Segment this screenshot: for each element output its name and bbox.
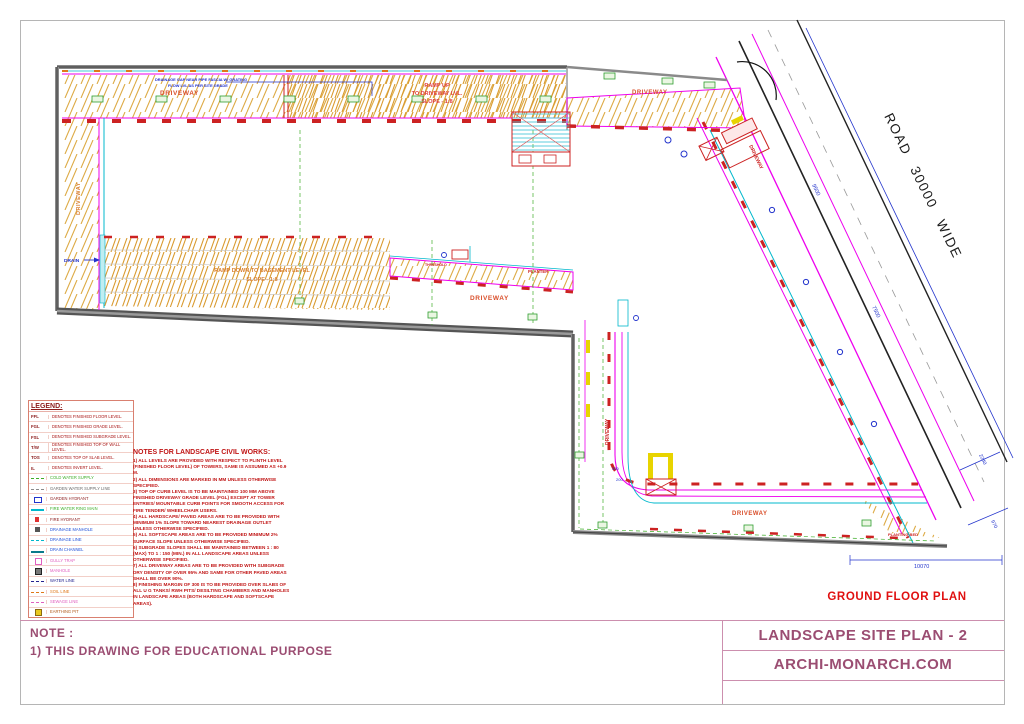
legend-title: LEGEND: [29, 401, 133, 412]
legend-row: ILDENOTES INVERT LEVEL. [29, 463, 133, 473]
dim-10070: 10070 [914, 564, 929, 570]
dim-300: 300 [612, 466, 619, 471]
legend-desc: MANHOLE [46, 569, 133, 573]
legend-desc: FIRE WATER RING MAIN [46, 507, 133, 511]
road-side-driveway-band [697, 118, 913, 543]
road-label: ROAD 30000 WIDE [881, 111, 965, 261]
legend-row: SOIL LINE [29, 587, 133, 597]
note-item: 1) ALL LEVELS ARE PROVIDED WITH RESPECT … [133, 458, 291, 477]
driveway-label-left-vertical: DRIVEWAY [76, 182, 82, 215]
note-item: 7) ALL DRIVEWAY AREAS ARE TO BE PROVIDED… [133, 563, 291, 582]
legend-symbol-icon [29, 598, 46, 606]
legend-symbol-icon [29, 516, 46, 524]
legend-symbol-icon [29, 577, 46, 585]
ramp-up-line3: SLOPE - 1:8 [421, 99, 452, 105]
legend-key: FGL [29, 424, 48, 429]
dim-2240: 2240 [977, 453, 987, 466]
legend-desc: SOIL LINE [46, 590, 133, 594]
legend-row: FGLDENOTES FINISHED GRADE LEVEL. [29, 422, 133, 432]
notes-title: NOTES FOR LANDSCAPE CIVIL WORKS: [133, 449, 291, 456]
titleblock-divider [722, 650, 1004, 651]
dim-200: 200 [616, 477, 623, 482]
legend-desc: COLD WATER SUPPLY [46, 476, 133, 480]
legend-symbol-icon [29, 505, 46, 513]
legend-symbol-icon [29, 588, 46, 596]
legend-row: MANHOLE [29, 566, 133, 576]
legend-desc: DENOTES INVERT LEVEL. [48, 466, 133, 470]
titleblock-divider [20, 620, 1004, 621]
legend-desc: EARTHING PIT [46, 610, 133, 614]
corner-barrier [646, 453, 676, 495]
driveway-label-top-left: DRIVEWAY [160, 90, 199, 97]
legend-desc: DRAINAGE MANHOLE [46, 528, 133, 532]
note-item: 4) ALL HARDSCAPE/ PAVED AREAS ARE TO BE … [133, 514, 291, 533]
note-item: 6) SUBGRADE SLOPES SHALL BE MAINTAINED B… [133, 545, 291, 564]
legend-desc: DENOTES FINISHED GRADE LEVEL. [48, 425, 133, 429]
sheet-title: LANDSCAPE SITE PLAN - 2 [722, 627, 1004, 644]
legend-row: EARTHING PIT [29, 608, 133, 617]
footer-note: NOTE : 1) THIS DRAWING FOR EDUCATIONAL P… [30, 626, 332, 658]
legend-row: COLD WATER SUPPLY [29, 474, 133, 484]
notes-panel: NOTES FOR LANDSCAPE CIVIL WORKS: 1) ALL … [133, 449, 291, 607]
legend-key: T/W [29, 445, 48, 450]
legend-desc: DENOTES TOP OF SLAB LEVEL. [48, 456, 133, 460]
legend-row: DRAIN CHANNEL [29, 546, 133, 556]
planter-label: PLANTER [528, 269, 549, 274]
legend-row: DRAINAGE LINE [29, 536, 133, 546]
legend-row: DRAINAGE MANHOLE [29, 525, 133, 535]
legend-row: FIRE WATER RING MAIN [29, 505, 133, 515]
legend-symbol-icon [29, 474, 46, 482]
drainage-note-line1: DRAINAGE GAP NEAR PIPE FASCIA W/ GRATING [155, 77, 247, 82]
titleblock-divider [722, 680, 1004, 681]
legend-desc: DRAIN CHANNEL [46, 548, 133, 552]
planting-bed-label: PLANTING BED [888, 532, 918, 537]
footer-note-text: 1) THIS DRAWING FOR EDUCATIONAL PURPOSE [30, 644, 332, 658]
water-feature [512, 112, 570, 166]
driveway-label-bottom: DRIVEWAY [732, 511, 767, 517]
note-item: 3) TOP OF CURB LEVEL IS TO BE MAINTAINED… [133, 489, 291, 514]
legend-desc: GARDEN HYDRANT [46, 497, 133, 501]
drawing-sheet: ROAD 30000 WIDE DRIVEWAY DRIVEWAY DRIVEW… [0, 0, 1024, 724]
legend-row: GULLY TRAP [29, 556, 133, 566]
legend-desc: GARDEN WATER SUPPLY LINE [46, 487, 133, 491]
legend-symbol-icon [29, 526, 46, 534]
legend-desc: DRAINAGE LINE [46, 538, 133, 542]
legend-key: IL [29, 466, 48, 471]
threshold-label: THRESHOLD [425, 263, 447, 267]
legend-row: GARDEN HYDRANT [29, 494, 133, 504]
note-item: 5) ALL SOFTSCAPE AREAS ARE TO BE PROVIDE… [133, 532, 291, 544]
legend-key: FSL [29, 435, 48, 440]
dim-7500: 7500 [870, 305, 881, 319]
drain-label: DRAIN [64, 258, 80, 264]
ramp-down-line1: RAMP DOWN TO BASEMENT LEVEL [214, 268, 310, 274]
legend-row: WATER LINE [29, 577, 133, 587]
legend-desc: WATER LINE [46, 579, 133, 583]
driveway-label-leg-vertical: DRIVEWAY [605, 418, 611, 445]
legend-key: FFL [29, 414, 48, 419]
legend-row: GARDEN WATER SUPPLY LINE [29, 484, 133, 494]
note-item: 8) FINISHING MARGIN OF 300 IS TO BE PROV… [133, 582, 291, 607]
driveway-label-top-right: DRIVEWAY [632, 90, 667, 96]
legend-row: FFLDENOTES FINISHED FLOOR LEVEL. [29, 412, 133, 422]
ramp-down-line2: SLOPE - 1:8 [246, 277, 277, 283]
legend-desc: DENOTES FINISHED FLOOR LEVEL. [48, 415, 133, 419]
legend-desc: DENOTES FINISHED SUBGRADE LEVEL. [48, 435, 133, 439]
legend-key: TOS [29, 455, 48, 460]
legend-symbol-icon [29, 495, 46, 503]
legend-symbol-icon [29, 485, 46, 493]
legend-desc: GULLY TRAP [46, 559, 133, 563]
legend-symbol-icon [29, 567, 46, 575]
legend-row: FSLDENOTES FINISHED SUBGRADE LEVEL. [29, 433, 133, 443]
legend-desc: FIRE HYDRANT [46, 518, 133, 522]
legend-symbol-icon [29, 547, 46, 555]
legend-desc: DENOTES FINISHED TOP OF WALL LEVEL. [48, 443, 133, 451]
legend-row: TOSDENOTES TOP OF SLAB LEVEL. [29, 453, 133, 463]
legend-symbol-icon [29, 536, 46, 544]
legend-row: SEWAGE LINE [29, 597, 133, 607]
ramp-up-line2: TO DRIVEWAY LVL. [412, 91, 463, 97]
ramp-up-line1: RAMP UP [424, 83, 450, 89]
legend-symbol-icon [29, 557, 46, 565]
site-plan-svg: ROAD 30000 WIDE DRIVEWAY DRIVEWAY DRIVEW… [0, 0, 1024, 724]
note-item: 2) ALL DIMENSIONS ARE MARKED IN MM UNLES… [133, 477, 291, 489]
legend-desc: SEWAGE LINE [46, 600, 133, 604]
dim-970: 970 [989, 519, 998, 529]
inner-lane [585, 320, 927, 538]
legend-symbol-icon [29, 608, 46, 616]
plan-caption: GROUND FLOOR PLAN [790, 591, 1004, 603]
legend-panel: LEGEND: FFLDENOTES FINISHED FLOOR LEVEL.… [28, 400, 134, 618]
brand-name: ARCHI-MONARCH.COM [722, 656, 1004, 673]
legend-row: T/WDENOTES FINISHED TOP OF WALL LEVEL. [29, 443, 133, 453]
drainage-note-line2: FLOW LVL AS PER SITE GRADE [168, 83, 228, 88]
driveway-label-mid: DRIVEWAY [470, 295, 509, 302]
legend-row: FIRE HYDRANT [29, 515, 133, 525]
footer-note-title: NOTE : [30, 626, 332, 640]
